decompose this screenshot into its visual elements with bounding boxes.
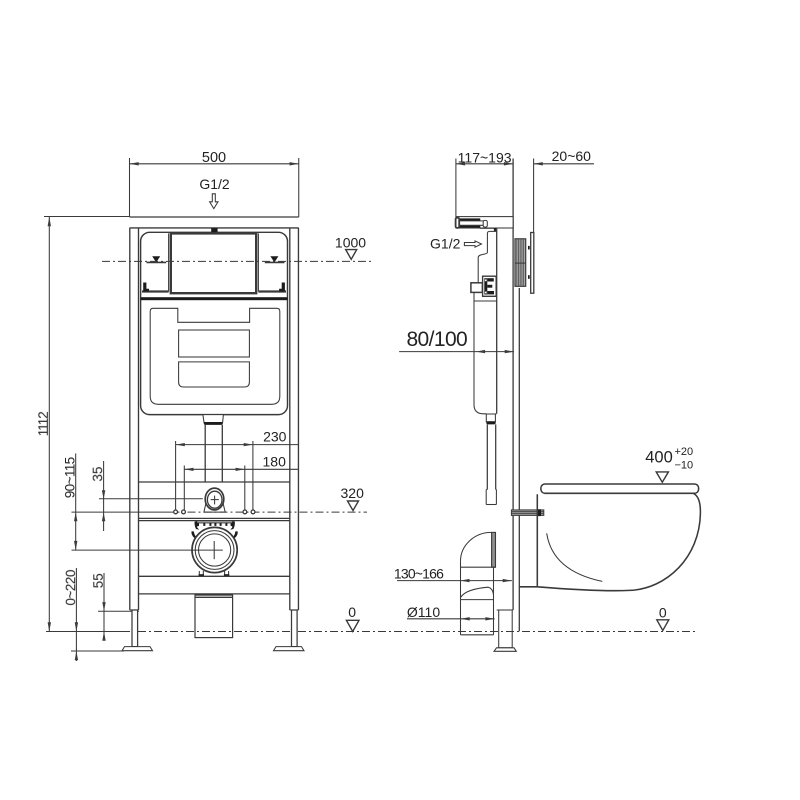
svg-text:G1/2: G1/2 xyxy=(430,236,461,252)
svg-text:55: 55 xyxy=(91,573,106,588)
svg-text:1000: 1000 xyxy=(335,235,366,251)
svg-text:320: 320 xyxy=(341,485,365,501)
svg-text:500: 500 xyxy=(202,150,226,166)
svg-text:20~60: 20~60 xyxy=(552,148,592,164)
svg-text:130~166: 130~166 xyxy=(394,566,444,582)
svg-text:35: 35 xyxy=(90,466,105,481)
svg-text:0~220: 0~220 xyxy=(63,570,78,605)
svg-text:G1/2: G1/2 xyxy=(199,176,230,192)
svg-text:230: 230 xyxy=(263,428,287,444)
svg-text:400: 400 xyxy=(645,448,673,466)
svg-text:Ø110: Ø110 xyxy=(407,604,440,620)
svg-text:+20: +20 xyxy=(675,446,694,458)
svg-text:0: 0 xyxy=(659,605,667,621)
svg-text:180: 180 xyxy=(263,454,287,470)
svg-text:80/100: 80/100 xyxy=(406,328,467,351)
svg-text:117~193: 117~193 xyxy=(458,149,512,165)
svg-text:−10: −10 xyxy=(675,460,694,472)
svg-text:1112: 1112 xyxy=(36,412,51,437)
svg-text:0: 0 xyxy=(348,604,356,620)
svg-text:90~115: 90~115 xyxy=(62,457,77,498)
